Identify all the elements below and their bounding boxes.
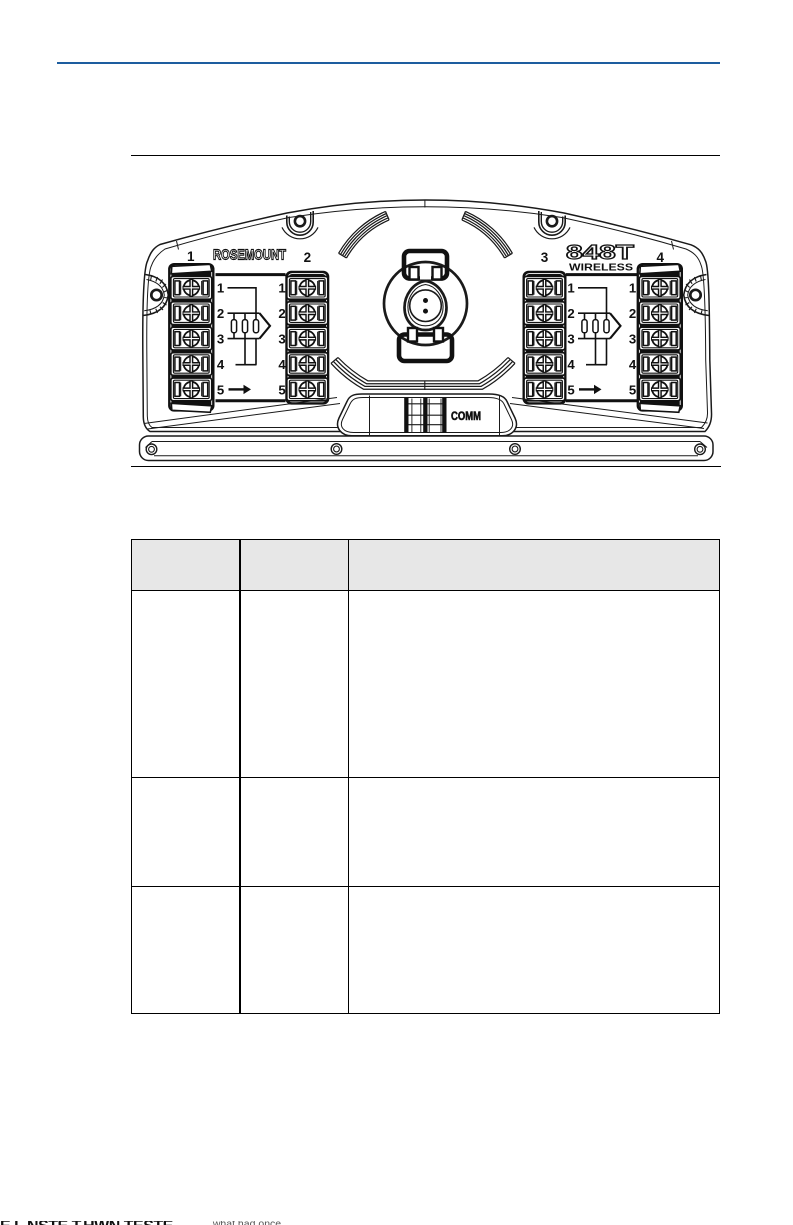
- svg-text:2: 2: [304, 250, 312, 265]
- svg-text:848T: 848T: [566, 242, 634, 264]
- svg-text:COMM: COMM: [451, 409, 481, 423]
- svg-text:4: 4: [657, 250, 665, 265]
- svg-text:ROSEMOUNT: ROSEMOUNT: [213, 247, 286, 264]
- svg-text:1: 1: [187, 249, 195, 264]
- svg-text:WIRELESS: WIRELESS: [569, 263, 634, 274]
- svg-text:3: 3: [541, 250, 549, 265]
